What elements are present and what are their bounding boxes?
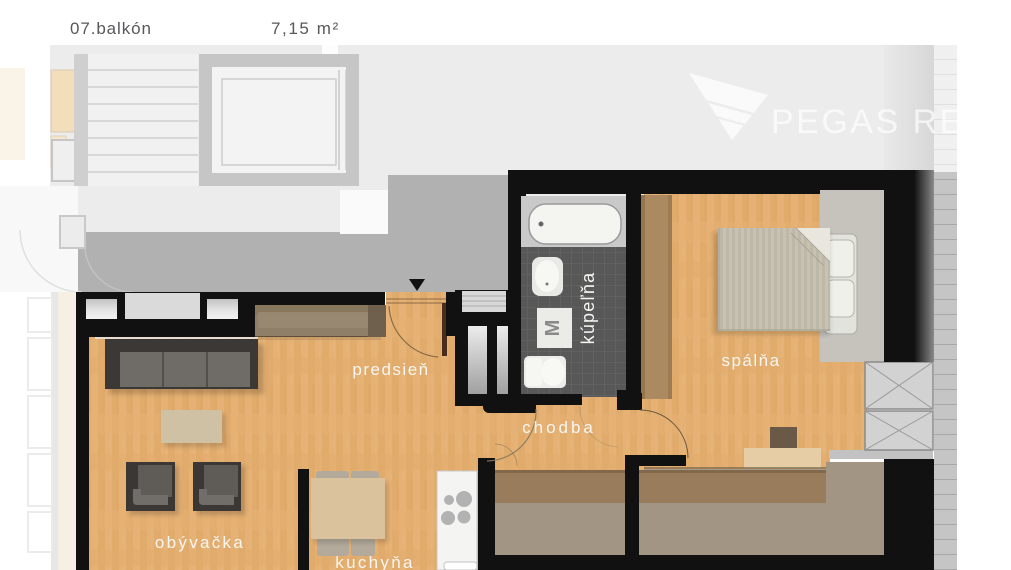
svg-text:kúpeľňa: kúpeľňa <box>578 272 598 345</box>
svg-text:kuchyňa: kuchyňa <box>335 553 414 570</box>
svg-text:PEGAS REAL: PEGAS REAL <box>771 103 1011 141</box>
svg-text:predsieň: predsieň <box>352 360 429 379</box>
svg-text:M: M <box>542 320 564 337</box>
svg-text:7,15 m²: 7,15 m² <box>271 19 340 38</box>
svg-text:spálňa: spálňa <box>721 351 780 370</box>
svg-text:07.balkón: 07.balkón <box>70 19 152 38</box>
svg-text:obývačka: obývačka <box>155 533 245 552</box>
svg-text:chodba: chodba <box>522 418 596 437</box>
